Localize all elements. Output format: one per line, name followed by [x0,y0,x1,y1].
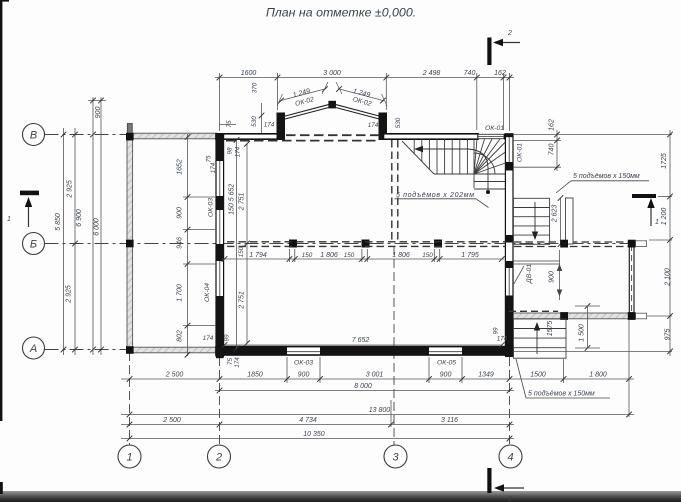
svg-text:1 700: 1 700 [177,284,184,302]
svg-text:ОК-01: ОК-01 [485,125,504,132]
svg-text:1 800: 1 800 [589,372,607,379]
svg-text:99: 99 [224,334,231,342]
svg-text:530: 530 [395,117,402,128]
svg-text:ОК-03: ОК-03 [294,360,313,367]
svg-text:150: 150 [422,252,433,259]
svg-text:ОК-01: ОК-01 [517,143,524,162]
svg-text:1: 1 [7,216,11,223]
svg-text:174: 174 [234,357,241,368]
svg-text:6 900: 6 900 [76,209,83,227]
svg-text:1652: 1652 [177,159,184,175]
svg-text:150: 150 [344,252,355,259]
svg-text:2 925: 2 925 [67,180,74,199]
svg-text:1 200: 1 200 [661,208,668,226]
svg-text:1850: 1850 [247,372,263,379]
svg-text:370: 370 [252,82,259,93]
svg-text:ДВ-01: ДВ-01 [526,264,533,284]
svg-text:975: 975 [665,329,672,341]
svg-text:174: 174 [203,335,214,342]
svg-text:2 751: 2 751 [239,193,246,212]
svg-text:1: 1 [126,452,132,464]
svg-text:740: 740 [549,144,556,156]
svg-text:900: 900 [95,107,102,119]
svg-text:900: 900 [440,372,452,379]
svg-text:174: 174 [264,122,275,129]
svg-text:2 100: 2 100 [665,268,672,287]
svg-text:3 000: 3 000 [323,70,341,77]
svg-text:2: 2 [215,452,222,464]
svg-text:75: 75 [226,120,233,128]
svg-text:План на отметке ±0,000.: План на отметке ±0,000. [266,6,416,20]
svg-text:3 001: 3 001 [366,372,384,379]
svg-text:1 794: 1 794 [249,252,267,259]
svg-text:1600: 1600 [241,70,257,77]
svg-text:2 925: 2 925 [66,285,73,304]
svg-text:5 подъёмов х 202мм: 5 подъёмов х 202мм [396,191,474,199]
svg-text:2: 2 [507,496,512,502]
svg-text:740: 740 [464,70,476,77]
svg-text:1500: 1500 [530,372,546,379]
svg-text:3 116: 3 116 [441,417,458,424]
svg-text:1 806: 1 806 [392,252,410,259]
svg-text:2 498: 2 498 [422,70,441,77]
svg-text:В: В [30,130,37,142]
svg-text:5 850: 5 850 [55,213,62,231]
svg-text:3: 3 [392,452,399,464]
svg-text:5 подъёмов х 150мм: 5 подъёмов х 150мм [528,390,595,398]
svg-text:150: 150 [238,246,245,257]
svg-text:4: 4 [507,452,513,464]
svg-text:8 000: 8 000 [354,383,372,390]
svg-text:2 751: 2 751 [239,291,246,310]
svg-text:174: 174 [235,146,242,157]
svg-text:1575: 1575 [547,321,554,337]
svg-text:900: 900 [177,207,184,219]
svg-text:6 000: 6 000 [94,218,101,236]
svg-text:174: 174 [497,336,508,343]
svg-text:174: 174 [368,122,379,129]
svg-text:4 734: 4 734 [299,417,317,424]
svg-text:1: 1 [655,219,659,226]
svg-text:ОК-03: ОК-03 [208,198,215,217]
svg-text:1725: 1725 [661,153,668,169]
svg-text:162: 162 [549,119,556,131]
svg-text:2 500: 2 500 [165,372,184,379]
svg-text:5 652: 5 652 [229,184,236,202]
svg-text:75: 75 [227,358,234,366]
svg-text:162: 162 [494,70,506,77]
svg-text:ОК-05: ОК-05 [437,360,456,367]
svg-text:1 500: 1 500 [579,324,586,342]
svg-text:ОК-04: ОК-04 [204,283,211,302]
svg-text:75: 75 [206,155,213,163]
svg-text:1349: 1349 [478,372,494,379]
svg-text:2 500: 2 500 [162,417,181,424]
svg-text:2: 2 [507,30,512,37]
svg-text:174: 174 [210,162,217,173]
svg-text:5 подъёмов х 150мм: 5 подъёмов х 150мм [573,172,640,180]
svg-text:2 623: 2 623 [552,205,559,224]
svg-text:99: 99 [493,327,500,335]
svg-text:7 652: 7 652 [352,337,370,344]
svg-text:1 806: 1 806 [320,252,338,259]
svg-text:900: 900 [549,271,556,283]
svg-text:Б: Б [30,239,37,251]
svg-text:10 350: 10 350 [303,431,325,438]
svg-text:98: 98 [227,147,234,155]
svg-text:900: 900 [298,372,310,379]
svg-text:1 795: 1 795 [461,252,479,259]
svg-text:530: 530 [251,116,258,127]
svg-text:13 800: 13 800 [369,407,391,414]
svg-text:150: 150 [229,203,236,215]
svg-text:150: 150 [302,252,313,259]
svg-text:946: 946 [177,237,184,249]
svg-text:802: 802 [177,330,184,342]
svg-text:А: А [29,343,37,355]
